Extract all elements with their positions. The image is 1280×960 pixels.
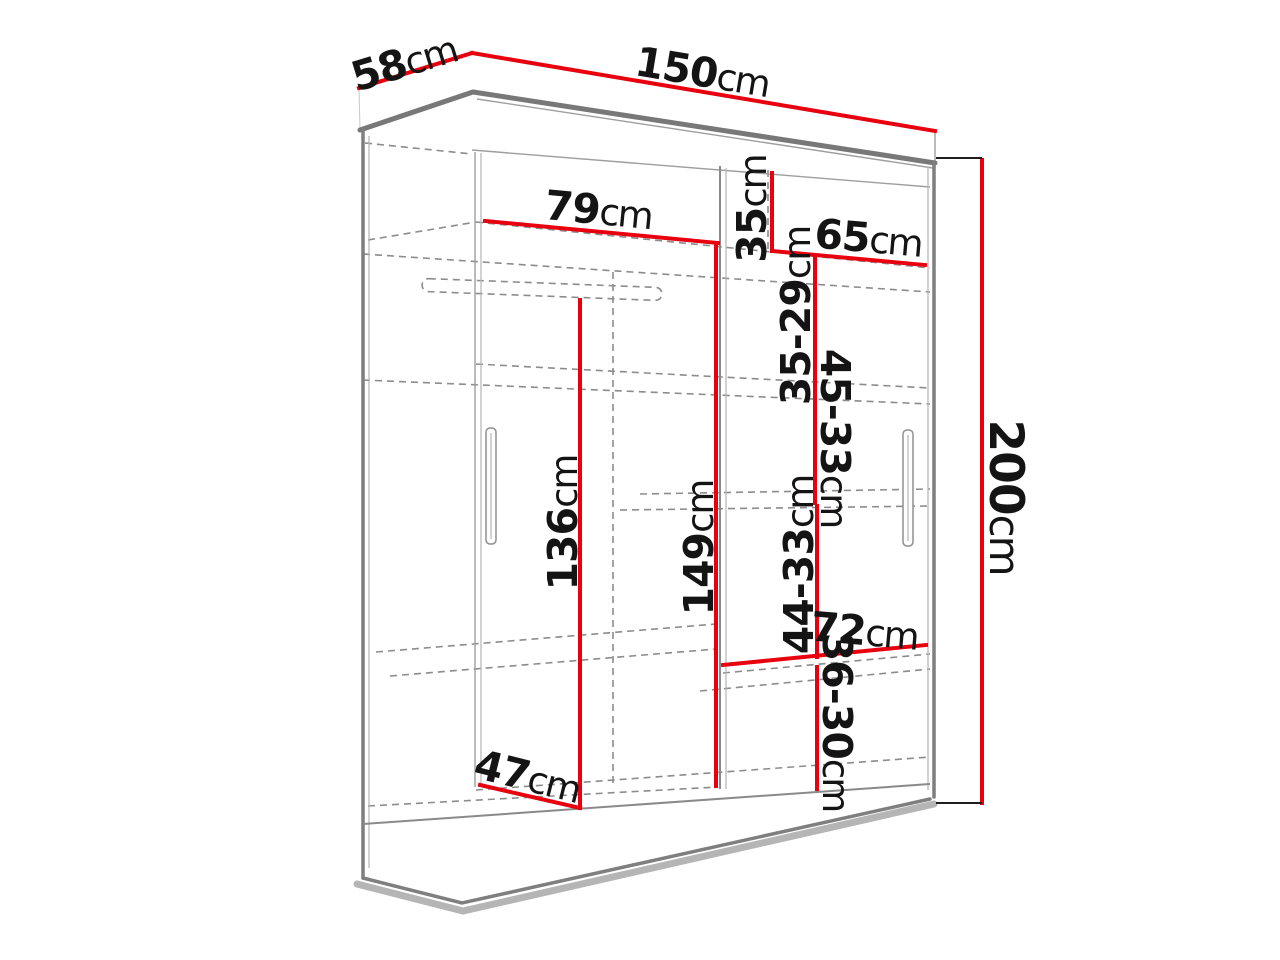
label-interior-height: 149cm <box>675 481 723 616</box>
label-hanging-height: 136cm <box>539 456 587 591</box>
label-top-gap: 35cm <box>728 155 776 262</box>
label-gap-36-30: 36-30cm <box>813 633 861 812</box>
right-door-handle <box>903 430 913 546</box>
left-door-handle <box>486 428 496 544</box>
wardrobe-dimension-diagram: 150cm 58cm 79cm 35cm 65cm 35-29cm 45-33c… <box>0 0 1280 960</box>
label-total-height: 200cm <box>978 419 1033 574</box>
diagram-canvas: 150cm 58cm 79cm 35cm 65cm 35-29cm 45-33c… <box>0 0 1280 960</box>
